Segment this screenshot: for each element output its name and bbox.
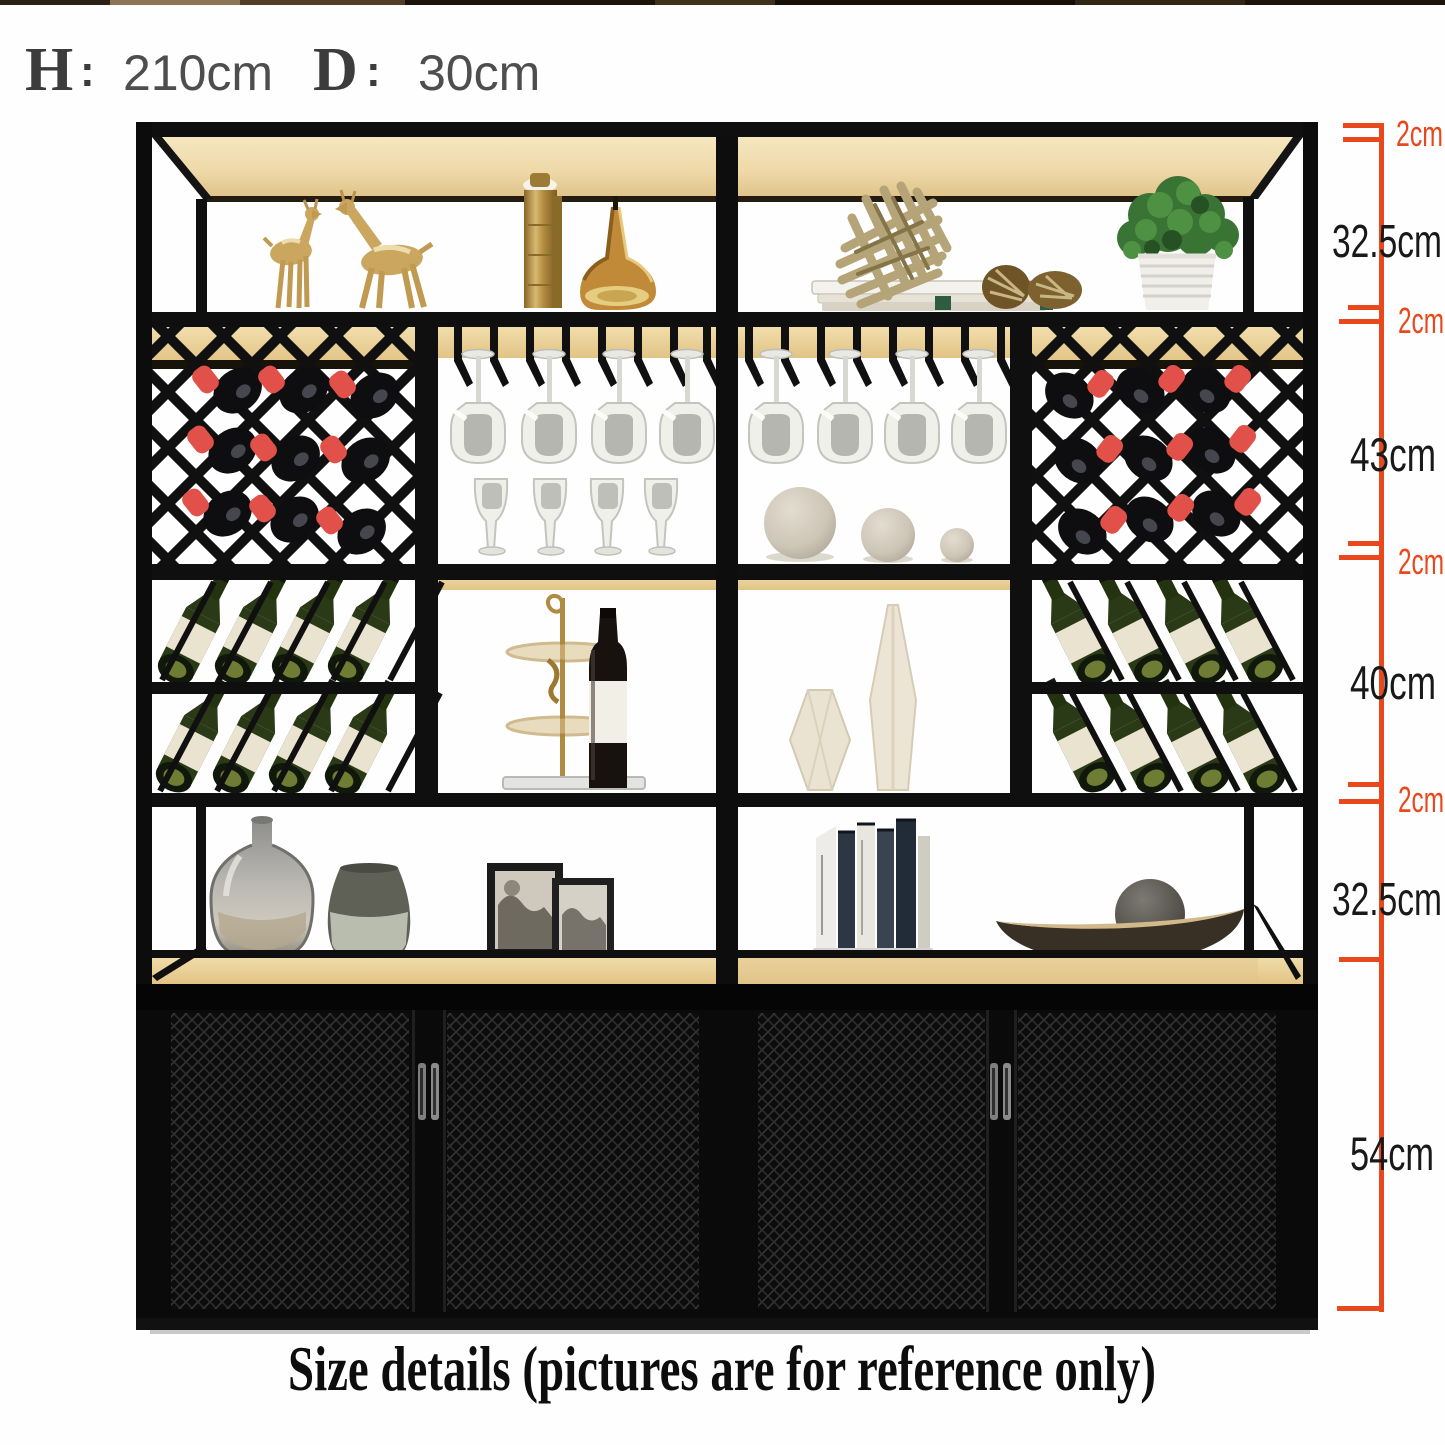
svg-text:210cm: 210cm xyxy=(123,45,273,101)
svg-text:2cm: 2cm xyxy=(1396,113,1443,154)
svg-text:H: H xyxy=(25,36,73,104)
svg-text:32.5cm: 32.5cm xyxy=(1332,215,1442,267)
svg-text:32.5cm: 32.5cm xyxy=(1332,873,1442,925)
svg-text:2cm: 2cm xyxy=(1398,779,1444,820)
svg-text:54cm: 54cm xyxy=(1350,1127,1434,1180)
svg-text:43cm: 43cm xyxy=(1350,428,1436,481)
svg-text:2cm: 2cm xyxy=(1398,300,1444,341)
svg-text:30cm: 30cm xyxy=(418,45,540,101)
svg-text:Size details (pictures are for: Size details (pictures are for reference… xyxy=(288,1334,1156,1404)
svg-text:D: D xyxy=(313,36,358,104)
svg-text:40cm: 40cm xyxy=(1350,656,1436,709)
svg-text:2cm: 2cm xyxy=(1398,541,1444,582)
svg-text::: : xyxy=(80,47,95,96)
svg-text::: : xyxy=(366,47,381,96)
